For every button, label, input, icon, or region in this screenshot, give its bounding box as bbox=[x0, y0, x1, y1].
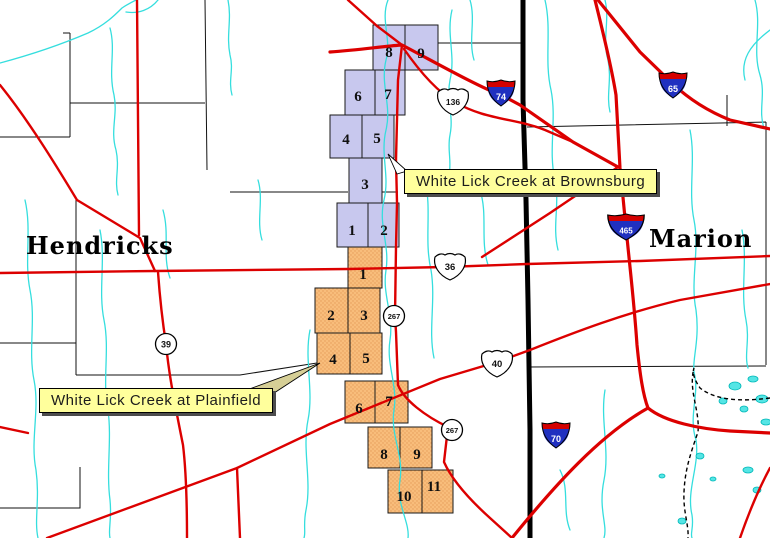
svg-text:36: 36 bbox=[445, 262, 456, 273]
us-route-shield-136: 136 bbox=[438, 89, 469, 116]
svg-text:1: 1 bbox=[359, 267, 367, 283]
road-west-stub bbox=[0, 427, 28, 433]
interstate-shield-70: 70 bbox=[542, 422, 570, 448]
svg-text:5: 5 bbox=[373, 131, 381, 147]
svg-text:4: 4 bbox=[342, 132, 350, 148]
svg-text:65: 65 bbox=[668, 84, 678, 94]
road-corner-arc bbox=[740, 468, 770, 538]
svg-text:74: 74 bbox=[496, 92, 506, 102]
svg-text:465: 465 bbox=[619, 227, 633, 236]
state-route-shield-39: 39 bbox=[156, 334, 177, 355]
map-canvas: 74 65 465 70 136 bbox=[0, 0, 770, 538]
svg-text:3: 3 bbox=[361, 177, 369, 193]
svg-text:8: 8 bbox=[380, 447, 388, 463]
svg-text:267: 267 bbox=[446, 426, 459, 435]
us-route-shield-40: 40 bbox=[482, 351, 513, 378]
interstate-shield-74: 74 bbox=[487, 80, 515, 106]
watershed-map: 74 65 465 70 136 bbox=[0, 0, 770, 538]
svg-text:8: 8 bbox=[385, 45, 393, 61]
svg-text:6: 6 bbox=[354, 89, 362, 105]
interstate-shield-465: 465 bbox=[608, 214, 644, 240]
svg-text:5: 5 bbox=[362, 351, 370, 367]
svg-text:4: 4 bbox=[329, 352, 337, 368]
svg-text:3: 3 bbox=[360, 308, 368, 324]
svg-text:7: 7 bbox=[385, 394, 393, 410]
svg-text:9: 9 bbox=[413, 447, 421, 463]
svg-text:6: 6 bbox=[355, 401, 363, 417]
svg-text:1: 1 bbox=[348, 223, 356, 239]
state-route-shield-267-south: 267 bbox=[442, 420, 463, 441]
svg-text:11: 11 bbox=[427, 479, 441, 495]
svg-text:9: 9 bbox=[417, 46, 425, 62]
road-north-vertical bbox=[137, 0, 139, 235]
road-branch-south bbox=[237, 468, 240, 538]
svg-text:267: 267 bbox=[388, 312, 401, 321]
svg-text:2: 2 bbox=[327, 308, 335, 324]
svg-text:40: 40 bbox=[492, 359, 503, 370]
county-label-hendricks: Hendricks bbox=[26, 231, 174, 260]
county-label-marion: Marion bbox=[649, 224, 752, 253]
svg-text:7: 7 bbox=[384, 87, 392, 103]
us-route-shield-36: 36 bbox=[435, 254, 466, 281]
callout-plainfield[interactable]: White Lick Creek at Plainfield bbox=[39, 388, 273, 413]
svg-text:10: 10 bbox=[397, 489, 412, 505]
callout-brownsburg[interactable]: White Lick Creek at Brownsburg bbox=[404, 169, 657, 194]
county-boundary-line bbox=[523, 0, 530, 538]
svg-text:136: 136 bbox=[446, 97, 460, 107]
svg-text:2: 2 bbox=[380, 223, 388, 239]
svg-text:70: 70 bbox=[551, 434, 561, 444]
state-route-shield-267-north: 267 bbox=[384, 306, 405, 327]
svg-text:39: 39 bbox=[161, 340, 171, 350]
